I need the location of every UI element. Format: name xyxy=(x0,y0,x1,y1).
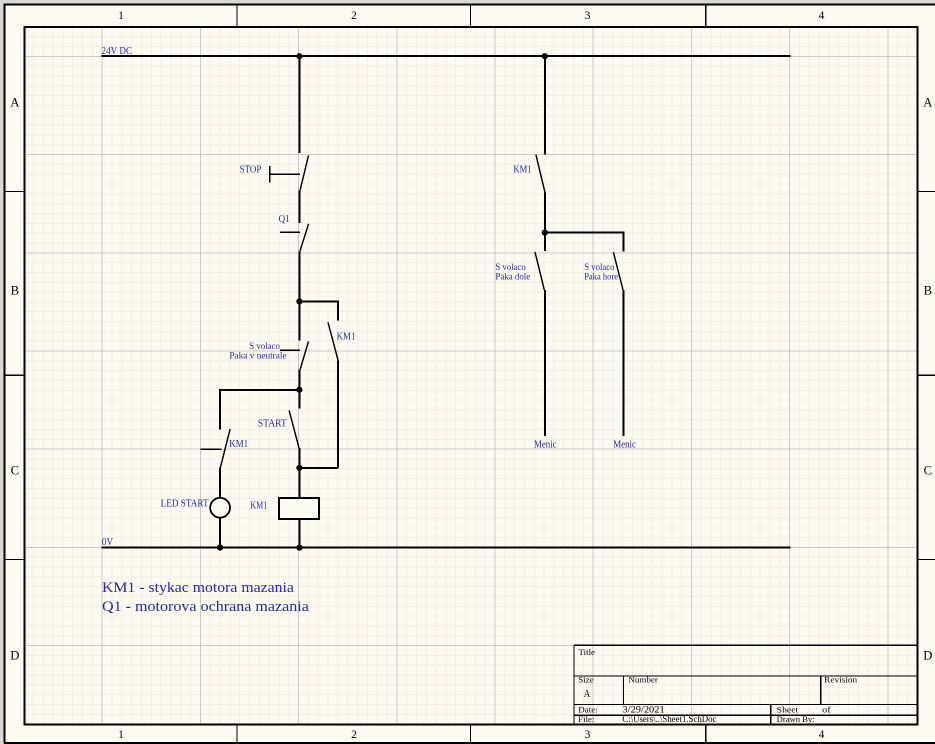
svg-text:A: A xyxy=(923,95,933,109)
svg-text:D: D xyxy=(10,648,19,662)
svg-text:Paka v neutrale: Paka v neutrale xyxy=(229,351,286,362)
svg-text:File:: File: xyxy=(578,715,594,724)
svg-text:A: A xyxy=(584,689,591,700)
svg-text:0V: 0V xyxy=(102,537,114,548)
svg-text:Revision: Revision xyxy=(824,676,858,685)
svg-text:24V DC: 24V DC xyxy=(102,46,133,57)
svg-text:STOP: STOP xyxy=(240,164,262,175)
svg-text:Date:: Date: xyxy=(578,706,598,715)
svg-text:1: 1 xyxy=(118,729,124,741)
svg-text:C: C xyxy=(924,464,932,478)
svg-text:KM1: KM1 xyxy=(229,439,248,450)
svg-text:LED START: LED START xyxy=(161,499,210,510)
svg-text:KM1 - stykac motora mazania: KM1 - stykac motora mazania xyxy=(102,580,294,596)
svg-text:B: B xyxy=(924,284,932,298)
svg-text:Size: Size xyxy=(578,676,594,685)
svg-text:Paka dole: Paka dole xyxy=(495,272,530,283)
svg-text:1: 1 xyxy=(118,10,124,22)
svg-text:4: 4 xyxy=(819,729,825,741)
svg-text:C: C xyxy=(11,464,19,478)
svg-text:A: A xyxy=(10,95,20,109)
svg-text:Q1 - motorova ochrana mazania: Q1 - motorova ochrana mazania xyxy=(102,599,309,615)
svg-text:Drawn By:: Drawn By: xyxy=(777,715,815,724)
svg-text:KM1: KM1 xyxy=(337,332,356,343)
svg-text:Title: Title xyxy=(579,648,596,657)
svg-text:KM1: KM1 xyxy=(250,500,267,511)
svg-text:START: START xyxy=(258,418,288,429)
svg-text:3: 3 xyxy=(585,10,591,22)
svg-text:4: 4 xyxy=(819,10,825,22)
svg-text:D: D xyxy=(923,648,932,662)
svg-text:2: 2 xyxy=(351,10,357,22)
svg-text:Menic: Menic xyxy=(534,439,557,450)
svg-text:Number: Number xyxy=(628,676,658,685)
svg-text:B: B xyxy=(11,284,19,298)
svg-text:3: 3 xyxy=(585,729,591,741)
svg-text:Menic: Menic xyxy=(613,439,636,450)
svg-text:KM1: KM1 xyxy=(513,164,531,175)
svg-text:Paka hore: Paka hore xyxy=(584,271,618,282)
svg-text:of: of xyxy=(822,706,831,715)
svg-text:C:\Users\..\Sheet1.SchDoc: C:\Users\..\Sheet1.SchDoc xyxy=(622,715,716,725)
svg-text:Q1: Q1 xyxy=(279,214,290,225)
svg-text:Sheet: Sheet xyxy=(777,706,799,715)
svg-text:2: 2 xyxy=(351,729,357,741)
